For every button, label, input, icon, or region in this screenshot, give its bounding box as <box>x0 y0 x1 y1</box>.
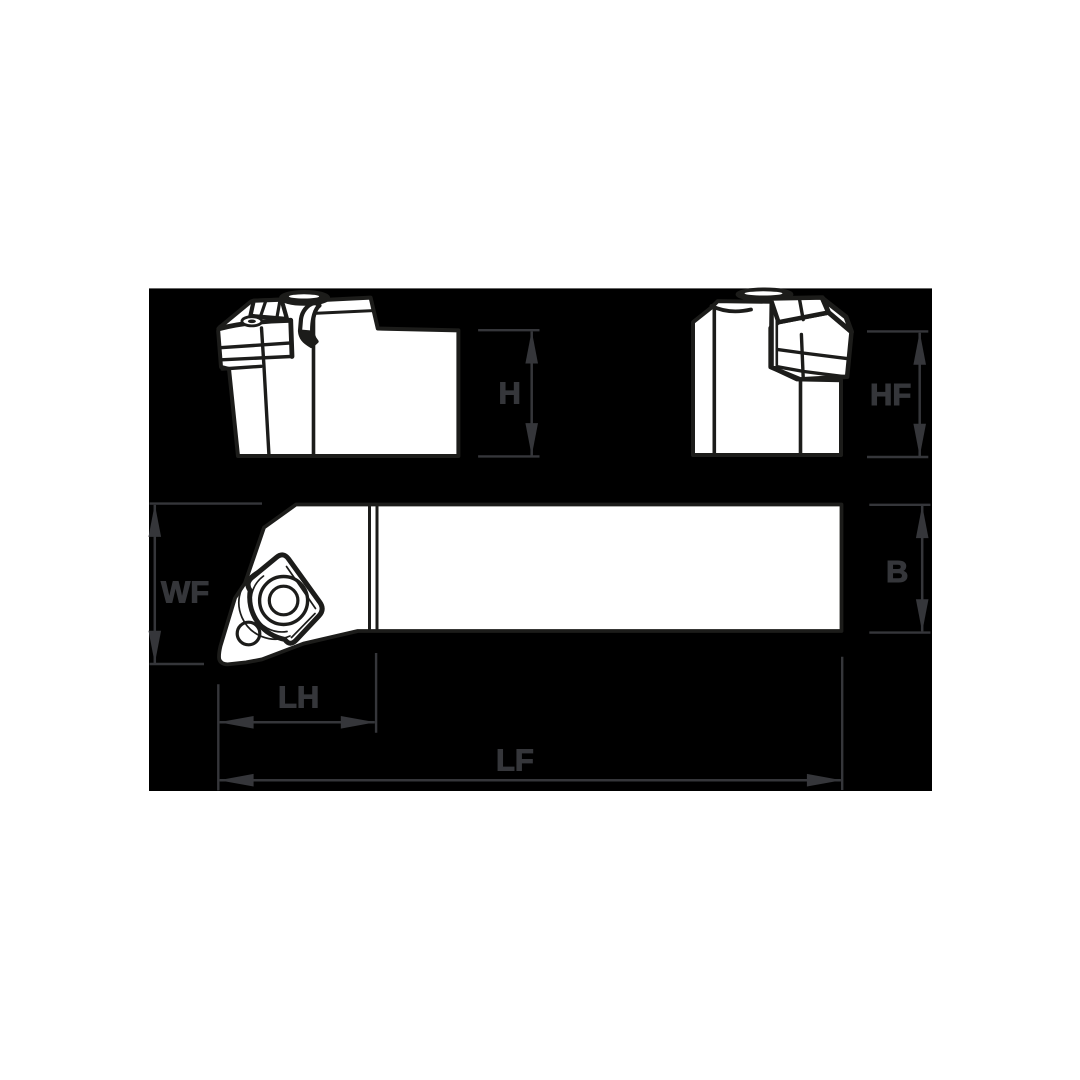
svg-text:B: B <box>886 554 908 589</box>
svg-text:HF: HF <box>870 377 911 412</box>
svg-text:WF: WF <box>161 575 209 610</box>
svg-text:LF: LF <box>496 743 534 778</box>
svg-text:H: H <box>499 376 521 411</box>
svg-text:LH: LH <box>278 680 319 715</box>
